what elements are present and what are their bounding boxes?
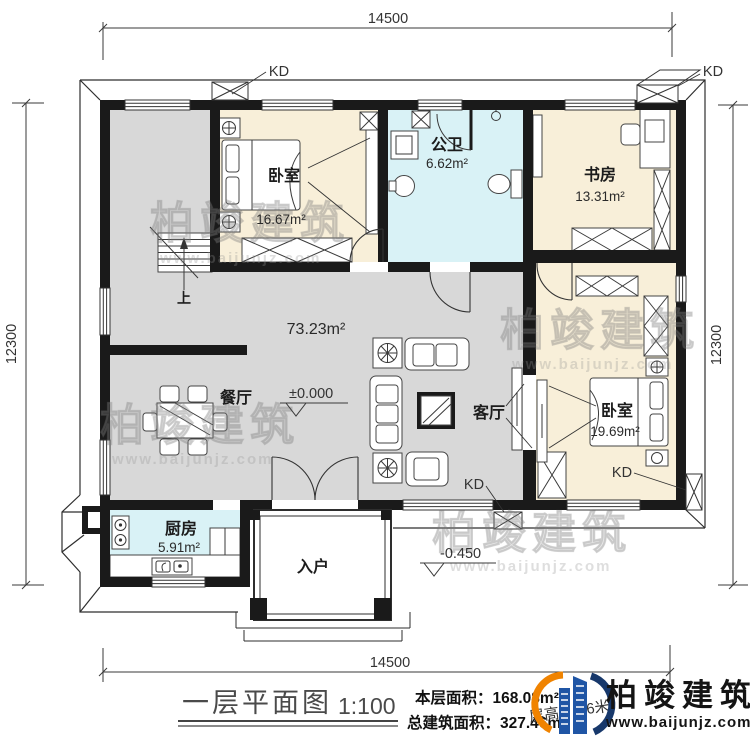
drawing-title: 一层平面图: [182, 688, 332, 718]
room-label-entry: 入户: [297, 557, 329, 576]
brand-logo: 柏竣建筑 www.baijunjz.com: [535, 675, 750, 734]
room-label-living: 客厅: [473, 403, 505, 422]
watermark-site: www.baijunjz.com: [159, 250, 321, 267]
open-area-value: 73.23m²: [287, 321, 346, 338]
window-kitchen-south: [152, 577, 205, 587]
dim-left-value: 12300: [4, 324, 20, 364]
floor-plan-page: 柏竣建筑 www.baijunjz.com 柏竣建筑 www.baijunjz.…: [0, 0, 750, 741]
window-right-middle: [676, 276, 686, 302]
flue-opening: [88, 512, 100, 528]
kd-label-4: KD: [612, 465, 632, 481]
watermark-site: www.baijunjz.com: [511, 356, 673, 373]
room-label-kitchen: 厨房: [165, 519, 197, 538]
room-label-bathroom: 公卫: [431, 136, 463, 154]
watermark-text: 柏竣建筑: [150, 199, 350, 248]
drawing-scale: 1:100: [338, 693, 396, 719]
window-stair-top: [125, 100, 190, 110]
kd-label-1: KD: [269, 64, 289, 80]
dimension-bottom: 14500: [99, 645, 674, 682]
ac-unit-bedroom2: [686, 474, 702, 510]
room-label-bedroom2: 卧室: [601, 401, 633, 420]
watermark-text: 柏竣建筑: [500, 306, 700, 355]
ac-unit-top-right: [637, 70, 700, 103]
total-area-label: 总建筑面积：: [407, 713, 500, 732]
window-bedroom1-top: [262, 100, 333, 110]
level-indoor-value: ±0.000: [289, 386, 333, 402]
ac-unit-top-left: [212, 82, 248, 100]
kd-label-3: KD: [464, 477, 484, 493]
window-bathroom-top: [418, 100, 462, 110]
floor-area-label: 本层面积：: [415, 688, 493, 707]
dimension-right: 12300: [709, 101, 748, 589]
floor-plan-drawing: 柏竣建筑 www.baijunjz.com 柏竣建筑 www.baijunjz.…: [0, 0, 750, 741]
dim-bottom-value: 14500: [370, 655, 410, 671]
study-door-leaf: [533, 115, 542, 177]
room-label-dining: 餐厅: [219, 388, 252, 407]
room-area-bedroom1: 16.67m²: [256, 212, 306, 227]
level-outdoor-value: -0.450: [440, 546, 481, 562]
porch-column-left: [250, 598, 267, 620]
watermark-text: 柏竣建筑: [100, 401, 300, 450]
watermark-site: www.baijunjz.com: [111, 451, 273, 468]
porch-column-right: [374, 598, 391, 620]
dimension-left: 12300: [4, 99, 44, 589]
dimension-top: 14500: [99, 11, 676, 60]
dim-right-value: 12300: [709, 325, 725, 365]
floor-area-value: 168.08m²: [493, 690, 559, 707]
window-study-top: [565, 100, 635, 110]
room-area-bathroom: 6.62m²: [426, 156, 469, 171]
stairs-up-label: 上: [177, 290, 191, 306]
room-area-study: 13.31m²: [575, 189, 625, 204]
brand-website: www.baijunjz.com: [605, 714, 750, 731]
sliding-door-living-bedroom2: [512, 368, 547, 462]
room-area-kitchen: 5.91m²: [158, 540, 201, 555]
room-area-bedroom2: 19.69m²: [590, 424, 640, 439]
window-left-upper: [100, 288, 110, 335]
room-label-bedroom1: 卧室: [268, 166, 300, 185]
room-label-study: 书房: [584, 165, 616, 184]
dim-top-value: 14500: [368, 11, 408, 27]
brand-name: 柏竣建筑: [606, 678, 750, 713]
kd-label-2: KD: [703, 64, 723, 80]
